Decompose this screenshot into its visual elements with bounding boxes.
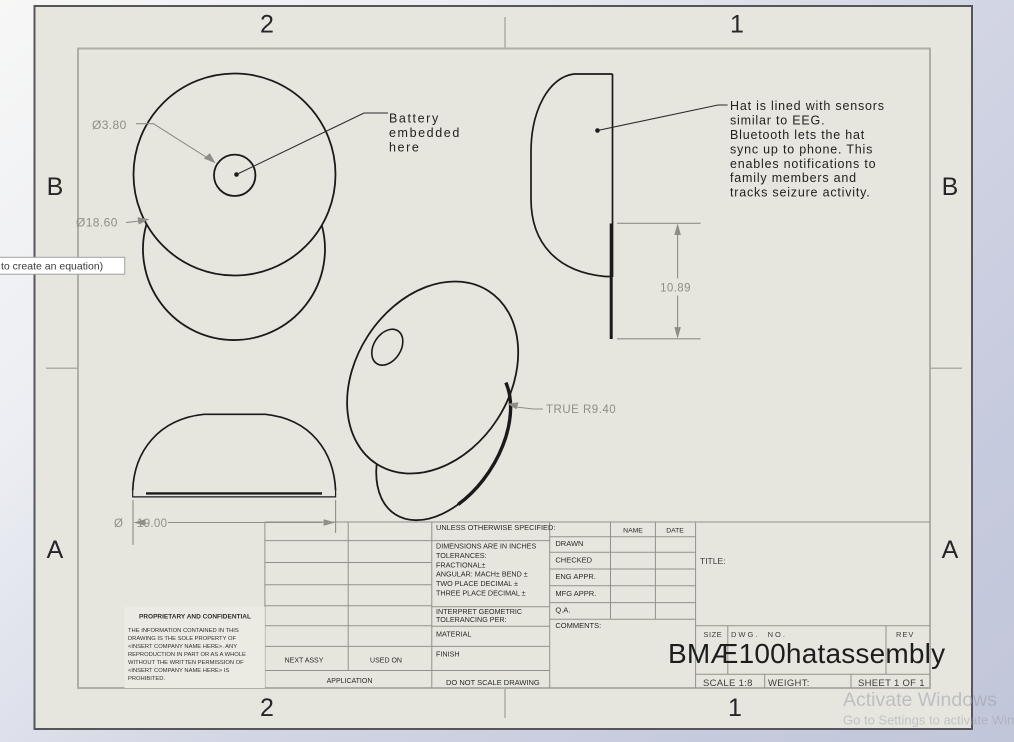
svg-text:DRAWING IS THE SOLE PROPERTY O: DRAWING IS THE SOLE PROPERTY OF xyxy=(128,636,236,642)
svg-text:CHECKED: CHECKED xyxy=(555,556,592,565)
svg-text:ENG APPR.: ENG APPR. xyxy=(555,572,595,581)
svg-text:APPLICATION: APPLICATION xyxy=(327,678,373,685)
svg-text:1: 1 xyxy=(730,11,744,39)
svg-text:embedded: embedded xyxy=(389,126,461,140)
svg-text:B: B xyxy=(47,173,64,201)
svg-text:BMÆ100hatassembly: BMÆ100hatassembly xyxy=(668,638,945,669)
svg-text:2: 2 xyxy=(260,11,274,39)
svg-text:sync up to phone. This: sync up to phone. This xyxy=(730,142,873,156)
svg-text:Ø3.80: Ø3.80 xyxy=(92,118,127,132)
svg-text:UNLESS OTHERWISE SPECIFIED:: UNLESS OTHERWISE SPECIFIED: xyxy=(436,523,555,532)
svg-text:TRUE R9.40: TRUE R9.40 xyxy=(546,404,616,416)
svg-text:DO NOT SCALE DRAWING: DO NOT SCALE DRAWING xyxy=(446,678,540,687)
svg-text:B: B xyxy=(942,173,959,201)
svg-text:FRACTIONAL±: FRACTIONAL± xyxy=(436,560,486,569)
svg-text:A: A xyxy=(942,536,959,564)
svg-text:<INSERT COMPANY NAME HERE>. AN: <INSERT COMPANY NAME HERE>. ANY xyxy=(128,644,237,650)
svg-text:REPRODUCTION IN PART OR AS A W: REPRODUCTION IN PART OR AS A WHOLE xyxy=(128,652,246,658)
svg-text:WEIGHT:: WEIGHT: xyxy=(768,678,810,689)
svg-text:similar to EEG.: similar to EEG. xyxy=(730,114,825,128)
svg-text:19.00: 19.00 xyxy=(137,518,167,530)
svg-text:enables notifications to: enables notifications to xyxy=(730,157,876,171)
svg-text:DIMENSIONS ARE IN INCHES: DIMENSIONS ARE IN INCHES xyxy=(436,542,536,551)
svg-text:<INSERT COMPANY NAME HERE> IS: <INSERT COMPANY NAME HERE> IS xyxy=(128,668,229,674)
svg-text:tracks seizure activity.: tracks seizure activity. xyxy=(730,186,871,200)
svg-text:A: A xyxy=(47,536,64,564)
svg-text:USED ON: USED ON xyxy=(370,658,402,665)
svg-text:THE INFORMATION CONTAINED IN T: THE INFORMATION CONTAINED IN THIS xyxy=(128,628,239,634)
svg-text:ANGULAR: MACH± BEND ±: ANGULAR: MACH± BEND ± xyxy=(436,570,528,579)
svg-text:COMMENTS:: COMMENTS: xyxy=(555,621,601,630)
svg-text:Q.A.: Q.A. xyxy=(555,605,570,614)
svg-text:Battery: Battery xyxy=(389,112,440,126)
svg-text:SHEET 1 OF 1: SHEET 1 OF 1 xyxy=(858,678,925,689)
svg-text:family members and: family members and xyxy=(730,171,857,185)
svg-text:Bluetooth lets the hat: Bluetooth lets the hat xyxy=(730,128,865,142)
svg-text:PROHIBITED.: PROHIBITED. xyxy=(128,676,165,682)
svg-text:FINISH: FINISH xyxy=(436,650,460,659)
svg-text:DATE: DATE xyxy=(666,528,684,535)
svg-text:MATERIAL: MATERIAL xyxy=(436,630,471,639)
svg-text:SCALE 1:8: SCALE 1:8 xyxy=(703,678,753,689)
svg-text:1: 1 xyxy=(728,694,742,722)
svg-text:Activate Windows: Activate Windows xyxy=(843,689,997,711)
svg-text:TWO PLACE DECIMAL ±: TWO PLACE DECIMAL ± xyxy=(436,579,518,588)
svg-text:NEXT ASSY: NEXT ASSY xyxy=(285,658,324,665)
svg-text:THREE PLACE DECIMAL ±: THREE PLACE DECIMAL ± xyxy=(436,589,526,598)
svg-text:TOLERANCES:: TOLERANCES: xyxy=(436,551,487,560)
svg-text:TOLERANCING PER:: TOLERANCING PER: xyxy=(436,615,507,624)
svg-text:here: here xyxy=(389,141,420,155)
svg-text:to create an equation): to create an equation) xyxy=(1,260,103,272)
svg-text:DRAWN: DRAWN xyxy=(555,539,583,548)
svg-text:Hat is lined with sensors: Hat is lined with sensors xyxy=(730,99,885,113)
svg-text:Ø: Ø xyxy=(114,518,123,530)
svg-text:Go to Settings to activate Win: Go to Settings to activate Windows xyxy=(843,713,1014,728)
svg-text:PROPRIETARY AND CONFIDENTIAL: PROPRIETARY AND CONFIDENTIAL xyxy=(139,614,251,621)
svg-text:Ø18.60: Ø18.60 xyxy=(76,216,118,230)
svg-text:10.89: 10.89 xyxy=(660,282,691,294)
svg-text:WITHOUT THE WRITTEN PERMISSION: WITHOUT THE WRITTEN PERMISSION OF xyxy=(128,660,244,666)
svg-text:MFG APPR.: MFG APPR. xyxy=(555,589,596,598)
svg-text:NAME: NAME xyxy=(623,528,643,535)
svg-text:TITLE:: TITLE: xyxy=(700,556,726,566)
svg-text:2: 2 xyxy=(260,694,274,722)
